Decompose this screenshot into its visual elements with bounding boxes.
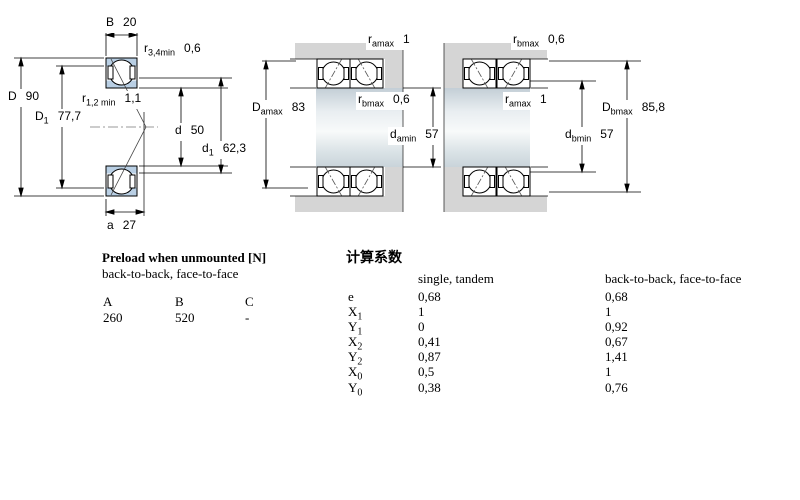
factor-value-paired: 0,67 xyxy=(605,334,628,349)
factor-value-single: 0,87 xyxy=(418,349,605,364)
dim-subscript: 1 xyxy=(44,115,49,125)
factor-sym-text: X xyxy=(348,364,357,379)
factor-sym-text: e xyxy=(348,289,354,304)
dim-value: 20 xyxy=(123,15,136,29)
dim-label-dbmin: dbmin57 xyxy=(563,127,616,145)
dim-symbol: D xyxy=(252,100,261,114)
dim-value: 0,6 xyxy=(184,41,201,55)
preload-col-A: A xyxy=(103,294,175,309)
dim-symbol: a xyxy=(107,218,114,232)
factors-row-Y0: Y00,380,76 xyxy=(348,380,628,401)
dim-value: 83 xyxy=(292,100,305,114)
preload-value-C: - xyxy=(245,310,249,325)
dim-value: 1,1 xyxy=(125,91,142,105)
factors-header-row: single, tandemback-to-back, face-to-face xyxy=(418,271,741,286)
dim-label-D1: D177,7 xyxy=(33,109,83,127)
dim-label-rbmax-fig3: rbmax0,6 xyxy=(511,32,567,50)
back-to-back-arrangement-figure xyxy=(290,43,403,212)
factor-sym-text: X xyxy=(348,304,357,319)
face-to-face-arrangement-figure xyxy=(444,43,548,212)
dim-value: 1 xyxy=(540,92,547,106)
dim-label-Dbmax: Dbmax85,8 xyxy=(600,100,667,118)
factors-col2-header: back-to-back, face-to-face xyxy=(605,271,741,286)
dim-subscript: amin xyxy=(397,133,417,143)
preload-value-A: 260 xyxy=(103,310,175,325)
factor-value-paired: 1 xyxy=(605,304,612,319)
dim-label-B: B20 xyxy=(104,15,138,33)
dim-subscript: bmin xyxy=(572,133,592,143)
preload-table-title: Preload when unmounted [N] xyxy=(102,250,266,265)
dim-value: 0,6 xyxy=(548,32,565,46)
dim-value: 0,6 xyxy=(393,92,410,106)
dim-value: 57 xyxy=(425,127,438,141)
factor-value-single: 0,41 xyxy=(418,334,605,349)
dim-subscript: bmax xyxy=(611,106,633,116)
dim-label-r34: r3,4min0,6 xyxy=(142,41,203,59)
factor-sym-sub: 0 xyxy=(357,388,362,399)
dim-symbol: D xyxy=(602,100,611,114)
dim-label-D: D90 xyxy=(6,89,41,107)
factor-sym-text: X xyxy=(348,334,357,349)
dim-subscript: amax xyxy=(261,106,283,116)
factor-sym-text: Y xyxy=(348,319,357,334)
preload-table-subtitle: back-to-back, face-to-face xyxy=(102,266,238,281)
dim-label-ramax-fig2: ramax1 xyxy=(366,32,412,50)
dim-label-Damax: Damax83 xyxy=(250,100,307,118)
factor-value-single: 0 xyxy=(418,319,605,334)
bearing-datasheet-page: B20 r3,4min0,6 D90 D177,7 r1,2 min1,1 d5… xyxy=(0,0,800,500)
preload-value-row: 260520- xyxy=(103,310,249,325)
factor-sym-text: Y xyxy=(348,380,357,395)
dim-symbol: d xyxy=(565,127,572,141)
preload-header-row: ABC xyxy=(103,294,254,309)
factor-value-paired: 1,41 xyxy=(605,349,628,364)
preload-col-C: C xyxy=(245,294,254,309)
dim-value: 1 xyxy=(403,32,410,46)
dim-label-rbmax-fig2: rbmax0,6 xyxy=(356,92,412,110)
factor-sym-text: Y xyxy=(348,349,357,364)
dim-subscript: amax xyxy=(509,98,531,108)
preload-value-B: 520 xyxy=(175,310,245,325)
factor-value-paired: 1 xyxy=(605,364,612,379)
factor-value-paired: 0,76 xyxy=(605,380,628,395)
dim-subscript: 3,4min xyxy=(148,47,175,57)
factor-value-single: 0,68 xyxy=(418,289,605,304)
dim-value: 62,3 xyxy=(223,141,246,155)
dim-label-ramax-fig3: ramax1 xyxy=(503,92,549,110)
dim-symbol: B xyxy=(106,15,114,29)
factor-value-single: 1 xyxy=(418,304,605,319)
dim-symbol: D xyxy=(8,89,17,103)
dim-label-d1: d162,3 xyxy=(200,141,248,159)
dim-value: 50 xyxy=(191,123,204,137)
dim-label-d: d50 xyxy=(173,123,206,141)
dim-symbol: D xyxy=(35,109,44,123)
factors-table-title: 计算系数 xyxy=(346,251,402,266)
factor-value-paired: 0,68 xyxy=(605,289,628,304)
dim-subscript: 1 xyxy=(209,147,214,157)
dim-value: 77,7 xyxy=(58,109,81,123)
dim-subscript: amax xyxy=(372,38,394,48)
dim-label-r12: r1,2 min1,1 xyxy=(80,91,143,109)
dim-symbol: d xyxy=(390,127,397,141)
dim-subscript: 1,2 min xyxy=(86,97,116,107)
dim-value: 85,8 xyxy=(642,100,665,114)
bearing-cross-section-figure xyxy=(90,58,158,216)
preload-col-B: B xyxy=(175,294,245,309)
factor-symbol: Y0 xyxy=(348,380,418,401)
dim-value: 27 xyxy=(123,218,136,232)
dim-subscript: bmax xyxy=(517,38,539,48)
dim-subscript: bmax xyxy=(362,98,384,108)
factors-col1-header: single, tandem xyxy=(418,271,605,286)
dim-value: 90 xyxy=(26,89,39,103)
dim-label-damin: damin57 xyxy=(388,127,441,145)
factor-value-single: 0,5 xyxy=(418,364,605,379)
dim-label-a: a27 xyxy=(105,218,138,236)
dim-symbol: d xyxy=(175,123,182,137)
factor-value-paired: 0,92 xyxy=(605,319,628,334)
dim-value: 57 xyxy=(600,127,613,141)
dim-symbol: d xyxy=(202,141,209,155)
factor-value-single: 0,38 xyxy=(418,380,605,395)
